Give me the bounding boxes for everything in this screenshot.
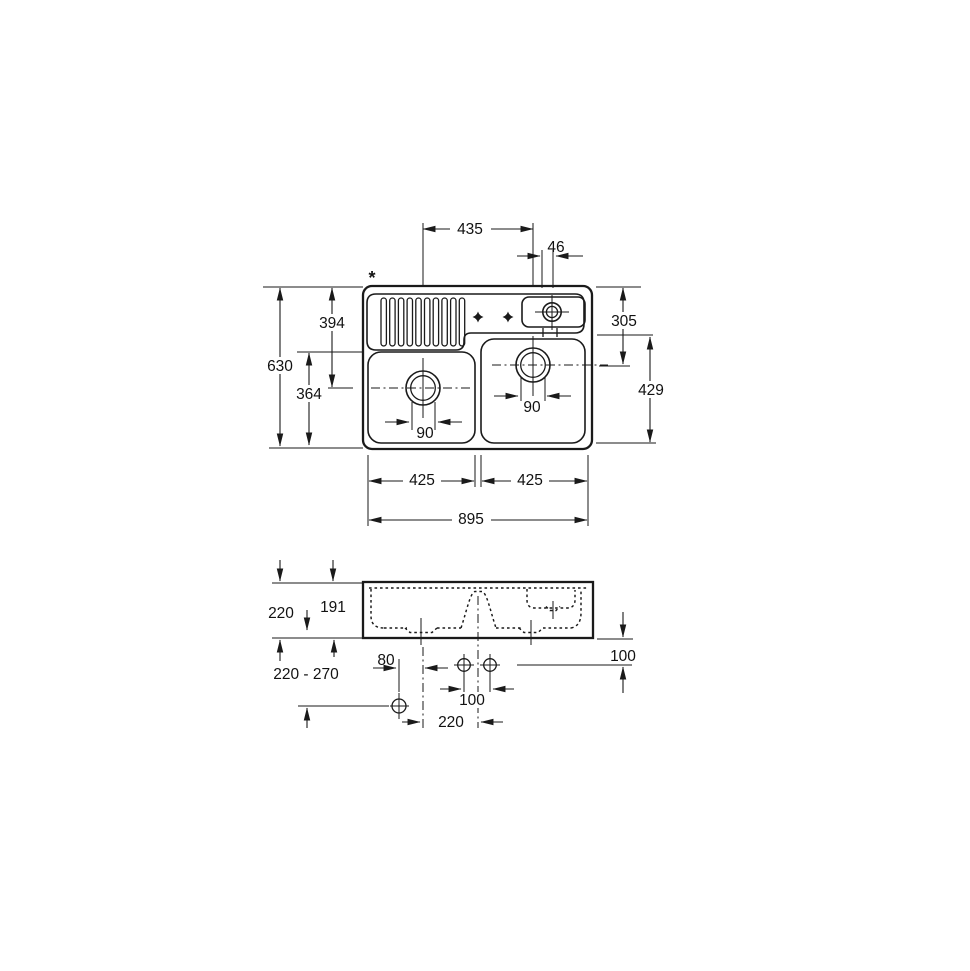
section-view: 220 191 220 - 270 80 100 100 220 <box>268 560 636 731</box>
dim-label-425-right: 425 <box>517 472 543 489</box>
dim-label-895: 895 <box>458 511 484 528</box>
dim-label-364: 364 <box>296 386 322 403</box>
dim-label-100-right: 100 <box>610 648 636 665</box>
dim-label-394: 394 <box>319 315 345 332</box>
dim-label-220-bottom: 220 <box>438 714 464 731</box>
dim-label-435: 435 <box>457 221 483 238</box>
tap-hole-icon <box>535 295 569 330</box>
label-backers <box>261 221 671 528</box>
drainboard-ribs <box>381 298 465 346</box>
tap-position-marker-icons <box>473 312 514 323</box>
dim-label-220-270: 220 - 270 <box>273 666 339 683</box>
technical-drawing-sheet: * 435 46 630 394 364 305 429 90 90 425 4… <box>0 0 970 971</box>
right-drain-icon <box>492 336 608 396</box>
sink-dimension-drawing: * 435 46 630 394 364 305 429 90 90 425 4… <box>0 0 970 971</box>
dim-label-630: 630 <box>267 358 293 375</box>
dim-label-46: 46 <box>547 239 564 256</box>
dim-label-90-right: 90 <box>523 399 541 416</box>
left-drain-icon <box>371 358 472 418</box>
waste-hole-icon <box>390 693 409 719</box>
dim-label-100-center: 100 <box>459 692 485 709</box>
dim-label-305: 305 <box>611 313 637 330</box>
dim-label-191: 191 <box>320 599 346 616</box>
plan-view: * 435 46 630 394 364 305 429 90 90 425 4… <box>261 221 671 528</box>
dim-label-90-left: 90 <box>416 425 434 442</box>
tap-hole-marker-icons <box>454 654 500 694</box>
dim-label-220-height: 220 <box>268 605 294 622</box>
dim-label-80: 80 <box>377 652 395 669</box>
dim-label-425-left: 425 <box>409 472 435 489</box>
footnote-marker: * <box>368 268 375 288</box>
plan-dimension-lines <box>280 229 650 520</box>
section-dimension-arrows <box>280 560 623 728</box>
dim-label-429: 429 <box>638 382 664 399</box>
